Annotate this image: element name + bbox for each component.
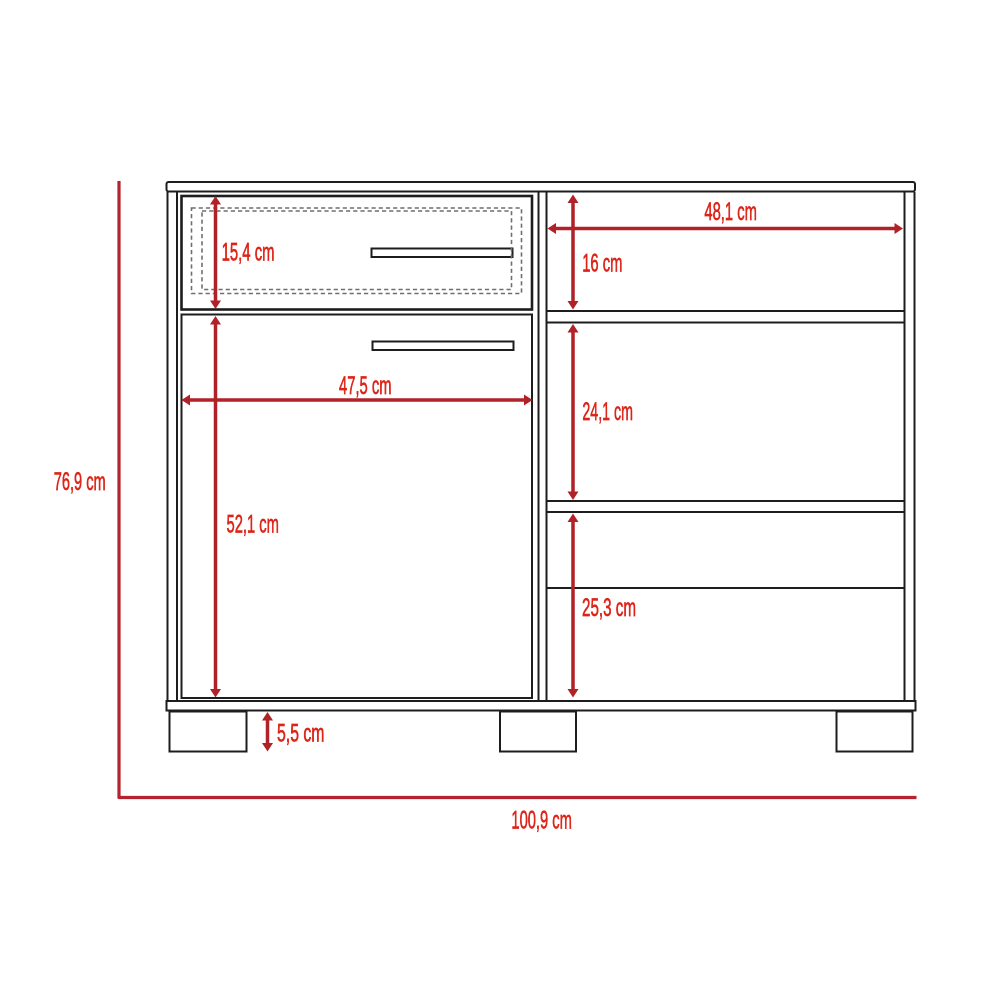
svg-text:15,4 cm: 15,4 cm [222,238,275,266]
svg-text:5,5 cm: 5,5 cm [277,719,325,747]
svg-text:24,1 cm: 24,1 cm [582,398,633,426]
svg-text:76,9 cm: 76,9 cm [54,468,106,496]
svg-text:16 cm: 16 cm [582,250,622,278]
svg-text:100,9 cm: 100,9 cm [511,806,572,834]
svg-text:47,5 cm: 47,5 cm [339,372,392,400]
svg-text:52,1 cm: 52,1 cm [227,511,279,539]
svg-text:25,3 cm: 25,3 cm [582,594,636,622]
svg-text:48,1 cm: 48,1 cm [704,198,757,226]
